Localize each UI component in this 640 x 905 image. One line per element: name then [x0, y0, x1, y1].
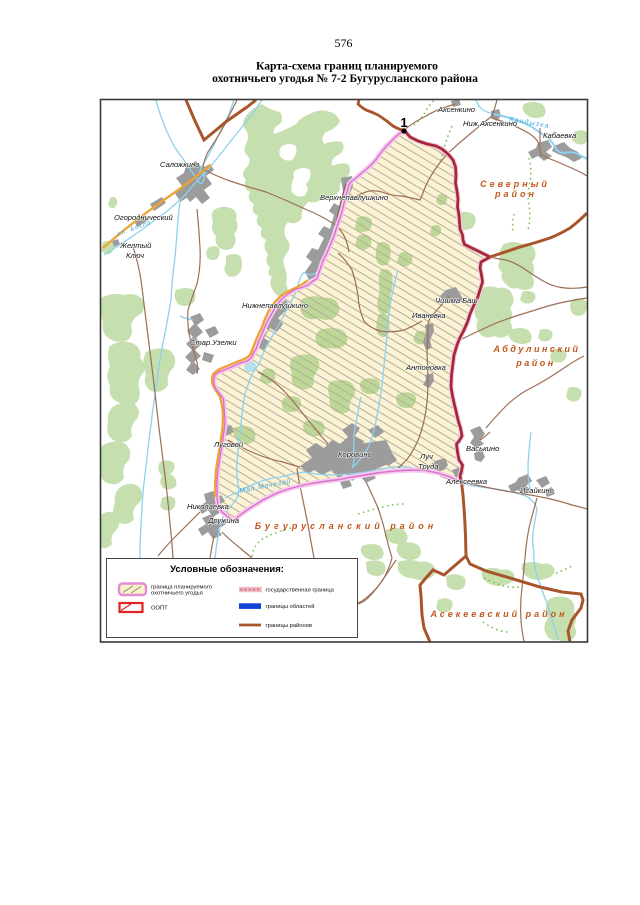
svg-text:Коровино: Коровино — [338, 450, 372, 459]
svg-text:Ивановка: Ивановка — [412, 311, 446, 320]
svg-text:Луговой: Луговой — [213, 440, 244, 449]
svg-text:Исайкино: Исайкино — [520, 486, 554, 495]
svg-text:Условные обозначения:: Условные обозначения: — [170, 564, 284, 575]
svg-text:Дружина: Дружина — [207, 516, 239, 525]
svg-text:Чишма Баш: Чишма Баш — [435, 296, 478, 305]
svg-text:576: 576 — [335, 36, 353, 50]
svg-text:государственная граница: государственная граница — [266, 588, 335, 594]
svg-text:Саложкино: Саложкино — [160, 160, 199, 169]
svg-text:район: район — [515, 358, 555, 368]
svg-text:Абдулинский: Абдулинский — [492, 344, 580, 354]
svg-text:Северный: Северный — [480, 179, 550, 189]
svg-text:Васькино: Васькино — [466, 444, 499, 453]
svg-text:Аксенкино: Аксенкино — [437, 105, 475, 114]
svg-text:Кабаевка: Кабаевка — [543, 131, 576, 140]
svg-text:охотничьего угодья № 7-2 Бугур: охотничьего угодья № 7-2 Бугурусланского… — [212, 72, 478, 85]
svg-text:Николаевка: Николаевка — [187, 502, 229, 511]
svg-text:Труда: Труда — [418, 462, 439, 471]
svg-text:район: район — [494, 189, 537, 199]
svg-text:ООПТ: ООПТ — [151, 606, 168, 612]
svg-text:Асекеевский район: Асекеевский район — [429, 609, 567, 619]
svg-text:охотничьего угодья: охотничьего угодья — [151, 591, 203, 597]
svg-text:границы районов: границы районов — [266, 622, 313, 629]
svg-text:Алексеевка: Алексеевка — [445, 477, 487, 486]
svg-text:Антоновка: Антоновка — [405, 363, 446, 372]
svg-text:Верхнепавлушкино: Верхнепавлушкино — [320, 193, 388, 202]
svg-text:Огороднический: Огороднический — [114, 213, 174, 222]
svg-text:Бугурусланский район: Бугурусланский район — [255, 521, 437, 531]
svg-text:Луч: Луч — [419, 452, 433, 461]
svg-text:Желтый: Желтый — [119, 241, 152, 250]
svg-text:1: 1 — [400, 115, 407, 130]
svg-text:Ключ: Ключ — [126, 251, 144, 260]
svg-text:Карта-схема границ планируемог: Карта-схема границ планируемого — [256, 60, 438, 73]
svg-text:Нижнепавлушкино: Нижнепавлушкино — [242, 301, 308, 310]
svg-text:Стар.Узелки: Стар.Узелки — [190, 338, 237, 347]
svg-text:границы областей: границы областей — [266, 603, 315, 610]
